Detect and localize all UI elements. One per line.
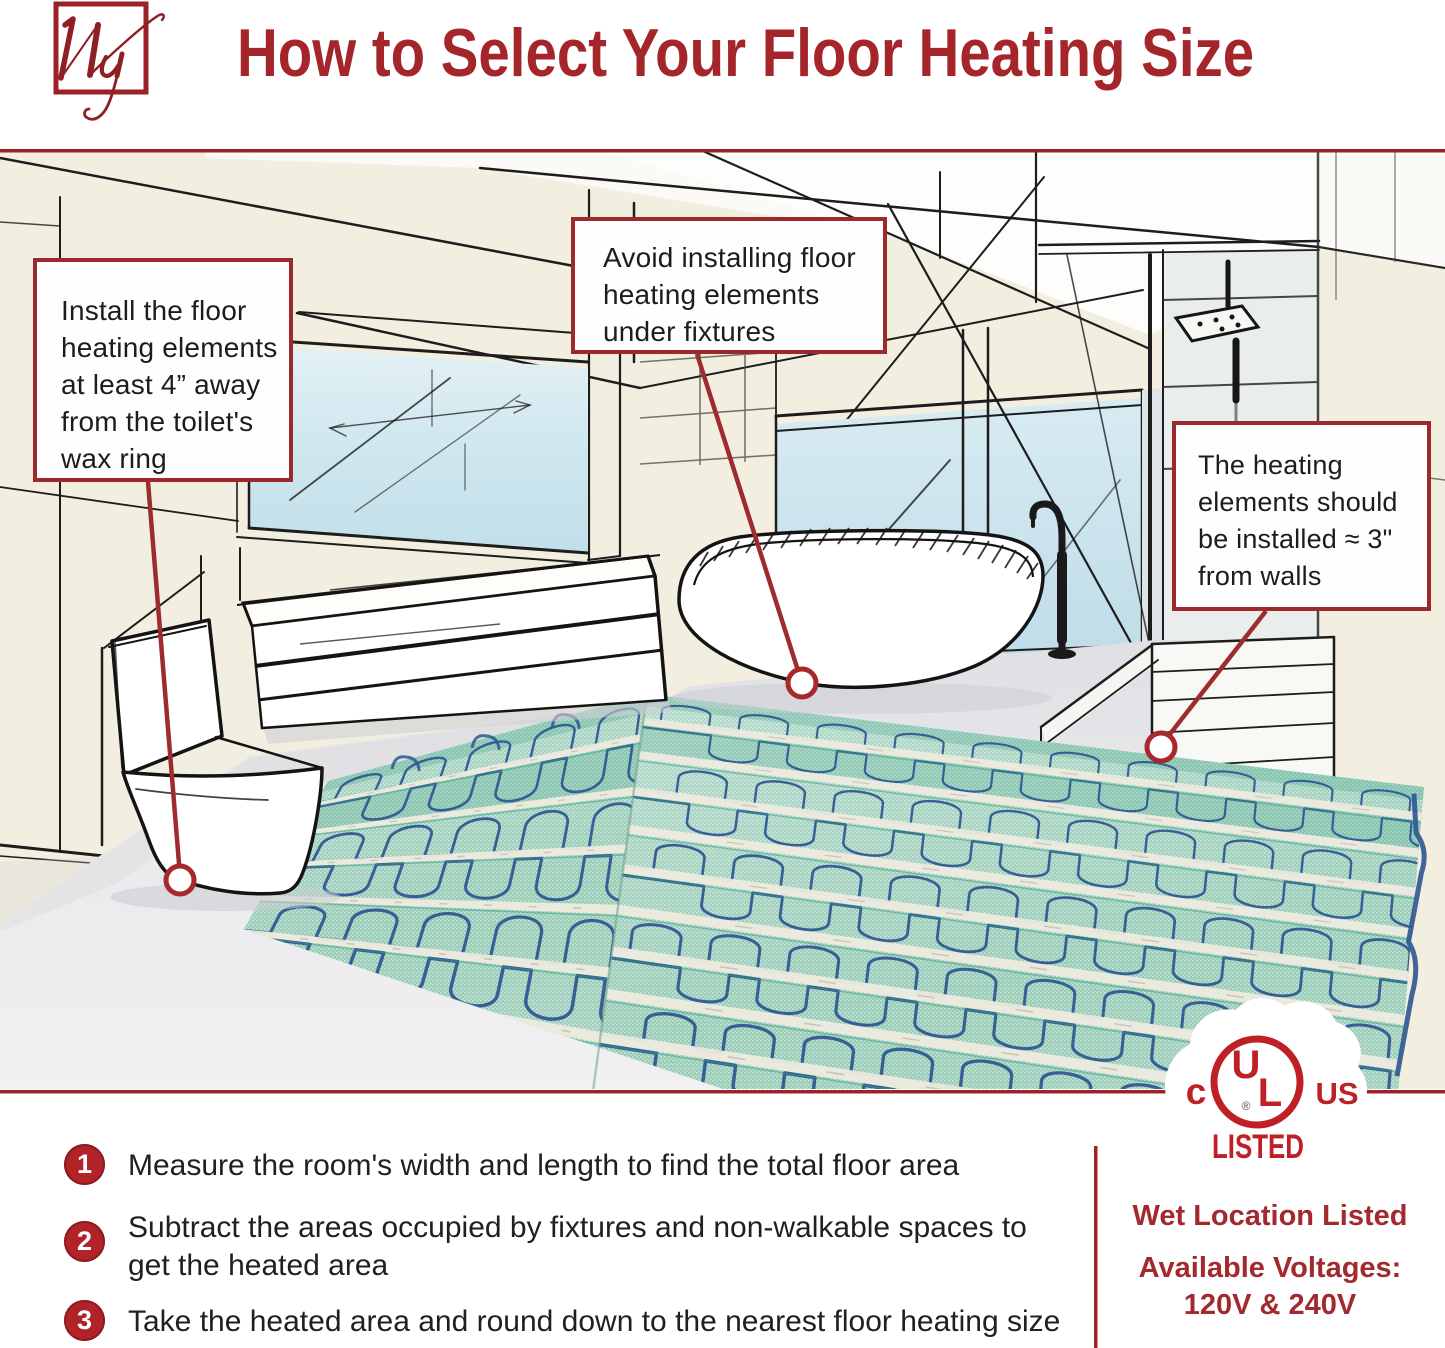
svg-text:U: U bbox=[1232, 1043, 1261, 1087]
svg-text:LISTED: LISTED bbox=[1212, 1128, 1304, 1166]
svg-text:L: L bbox=[1258, 1071, 1282, 1115]
svg-text:US: US bbox=[1315, 1076, 1358, 1111]
svg-text:®: ® bbox=[1242, 1099, 1251, 1113]
svg-text:c: c bbox=[1186, 1071, 1207, 1112]
